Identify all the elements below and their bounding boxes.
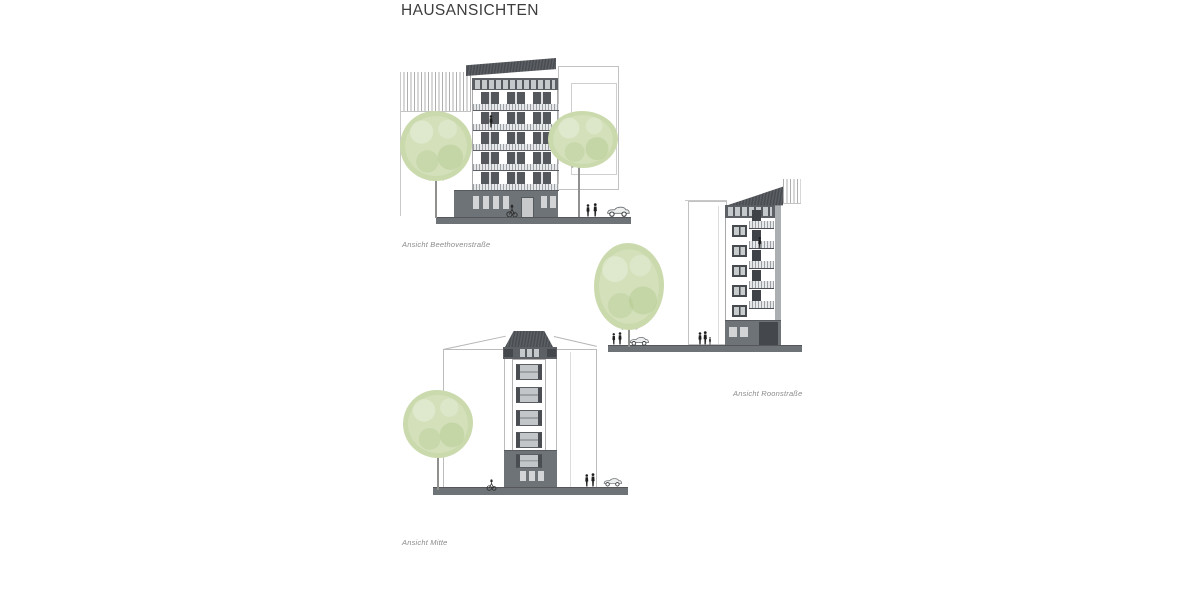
bicycle-icon xyxy=(506,204,518,218)
window-row xyxy=(481,172,551,184)
window-slot xyxy=(520,471,526,481)
building-wing-right xyxy=(556,349,597,488)
floor xyxy=(473,92,557,112)
person-icon xyxy=(757,237,763,249)
person-icon xyxy=(611,333,617,345)
neighbor-building-hatched xyxy=(783,179,801,204)
neighbor-building-hatched xyxy=(400,72,471,112)
top-floor-band xyxy=(472,78,558,90)
attic-window xyxy=(520,349,540,357)
view-label: Ansicht Beethovenstraße xyxy=(402,240,490,249)
window-slot xyxy=(493,196,499,209)
balcony-railing xyxy=(749,221,774,229)
person-icon xyxy=(708,337,712,345)
tree-icon xyxy=(403,390,473,458)
view-label: Ansicht Mitte xyxy=(402,538,448,547)
balcony-railing xyxy=(473,164,559,171)
roof xyxy=(727,186,783,206)
ground-line xyxy=(433,487,628,495)
window-row xyxy=(481,132,551,144)
balcony-railing xyxy=(473,104,559,111)
window-row xyxy=(481,152,551,164)
ground-floor xyxy=(504,450,557,491)
person-icon xyxy=(584,474,590,487)
person-icon xyxy=(592,203,599,217)
person-icon xyxy=(488,115,494,128)
roof xyxy=(466,58,556,76)
balcony xyxy=(749,250,774,270)
ground-floor xyxy=(454,190,558,219)
tree-trunk xyxy=(435,176,437,218)
neighbor-inner-line xyxy=(718,206,719,344)
window xyxy=(516,410,542,426)
tree-icon xyxy=(594,243,664,330)
attic-shutter xyxy=(547,349,556,357)
balcony xyxy=(749,290,774,310)
balcony-railing xyxy=(749,301,774,309)
window-slot xyxy=(483,196,489,209)
bicycle-icon xyxy=(486,479,497,491)
car-icon xyxy=(628,336,650,347)
window xyxy=(516,432,542,448)
window xyxy=(732,245,747,257)
window-row xyxy=(481,92,551,104)
ground-line xyxy=(436,217,631,224)
tree-icon xyxy=(548,111,618,168)
floor xyxy=(473,152,557,172)
garage-door xyxy=(759,322,778,345)
window-slot xyxy=(473,196,479,209)
balcony-railing xyxy=(473,144,559,151)
car-icon xyxy=(602,477,623,488)
balcony xyxy=(749,210,774,230)
attic-shutter xyxy=(504,349,513,357)
top-floor-band xyxy=(503,347,557,359)
window-slot xyxy=(538,471,544,481)
entrance-door xyxy=(521,197,534,219)
window xyxy=(732,305,747,317)
balcony-railing xyxy=(749,261,774,269)
window xyxy=(516,387,542,403)
window-slot xyxy=(550,196,556,208)
window xyxy=(516,364,542,380)
roofline-left xyxy=(443,336,506,350)
floor xyxy=(473,112,557,132)
car-icon xyxy=(605,206,631,218)
window-slot xyxy=(541,196,547,208)
balcony xyxy=(749,270,774,290)
window-slot xyxy=(529,471,535,481)
floor xyxy=(473,132,557,152)
page-title: HAUSANSICHTEN xyxy=(401,2,539,20)
window xyxy=(732,265,747,277)
window xyxy=(732,225,747,237)
tree-trunk xyxy=(578,163,580,217)
floor xyxy=(473,172,557,192)
roofline-right xyxy=(554,336,597,347)
glazing-strip xyxy=(475,80,555,89)
roof xyxy=(505,331,553,347)
person-icon xyxy=(585,204,591,217)
balcony-railing xyxy=(473,124,559,131)
wing-inner-line xyxy=(570,352,571,487)
building-facade xyxy=(472,90,558,190)
tree-icon xyxy=(400,111,472,181)
balcony-stack xyxy=(749,210,774,310)
window-slot xyxy=(729,327,737,337)
view-label: Ansicht Roonstraße xyxy=(733,389,802,398)
window xyxy=(516,454,542,468)
window xyxy=(732,285,747,297)
balcony-railing xyxy=(749,281,774,289)
neighbor-building xyxy=(688,201,727,345)
drawing-sheet: HAUSANSICHTEN xyxy=(0,0,1200,600)
window-slot xyxy=(740,327,748,337)
ground-floor xyxy=(725,320,781,346)
person-icon xyxy=(617,332,623,345)
person-icon xyxy=(590,473,596,487)
